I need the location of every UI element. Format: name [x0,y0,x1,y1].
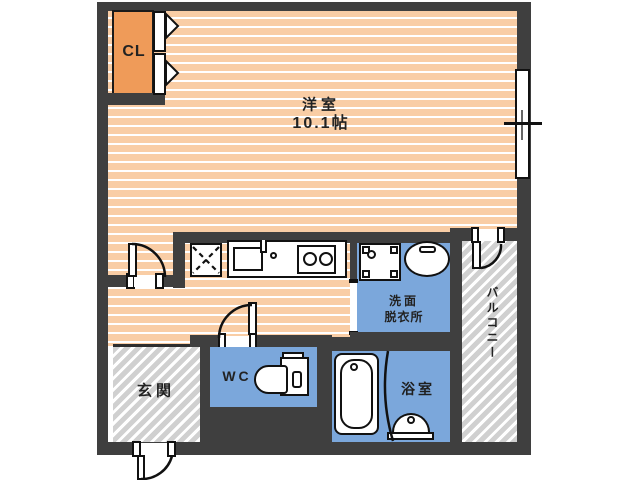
refrigerator-space-icon [190,243,222,277]
wc-bath-wall [317,347,332,442]
pan-corner [390,246,398,254]
faucet-knob-icon [270,252,277,259]
toilet-seat-icon [292,371,302,388]
balcony-door-opening [479,229,497,241]
balcony-wall-top-a [450,228,471,241]
washroom-label-line1: 洗面 [389,295,419,307]
corridor-wall-stub [164,275,173,287]
pan-corner [362,270,370,278]
washroom-label-line2: 脱衣所 [384,311,423,323]
entrance-door-opening [141,443,167,455]
balcony-label: バルコニー [486,286,498,361]
washroom-wall-left [350,232,357,282]
kitchen-wall-vertical [173,232,185,288]
basin-faucet-icon [419,246,436,253]
pan-drain-icon [367,250,376,259]
kitchen-sink-icon [233,247,263,271]
door-frame [349,279,358,283]
door-arc [141,456,172,479]
closet-door-panel-bottom [153,53,166,95]
entrance-label: 玄関 [137,384,175,399]
door-frame [497,227,505,243]
toilet-bowl-icon [254,365,288,394]
counter-knob-icon [407,416,415,424]
bath-wall-top [317,337,462,351]
outer-wall-left [97,2,108,455]
living-room-area: 10.1帖 [292,116,349,132]
entrance-door-leaf [137,455,145,480]
living-room-label: 洋室 [302,98,340,113]
door-opening [134,275,156,287]
window-sash-line [521,110,523,140]
faucet-icon [260,240,267,253]
door-frame [155,273,164,289]
wall-below-wc [208,407,332,442]
swing-door-leaf [248,302,257,335]
closet-door-panel-top [153,11,166,52]
wc-door-opening [226,336,249,347]
bath-counter-base [387,432,434,440]
window-center-tick [504,122,542,125]
wc-label: WC [222,369,251,383]
swing-door-leaf [472,241,481,269]
burner-icon [303,252,317,266]
pan-corner [390,270,398,278]
wc-wall-top-a [190,335,218,347]
washroom-sliding-door [350,282,357,332]
closet-label: CL [122,44,145,60]
swing-door-leaf [128,243,137,277]
floor-plan: CL 洋室 10.1帖 洗面 脱衣所 バルコニー 玄関 [0,0,640,480]
door-frame [167,441,176,457]
corridor-wall-segment [108,275,127,287]
bath-label: 浴室 [401,382,435,396]
outer-wall-top [97,2,531,11]
burner-icon [319,252,333,266]
balcony-wall-top-b [505,228,517,241]
tub-drain-icon [350,363,358,371]
